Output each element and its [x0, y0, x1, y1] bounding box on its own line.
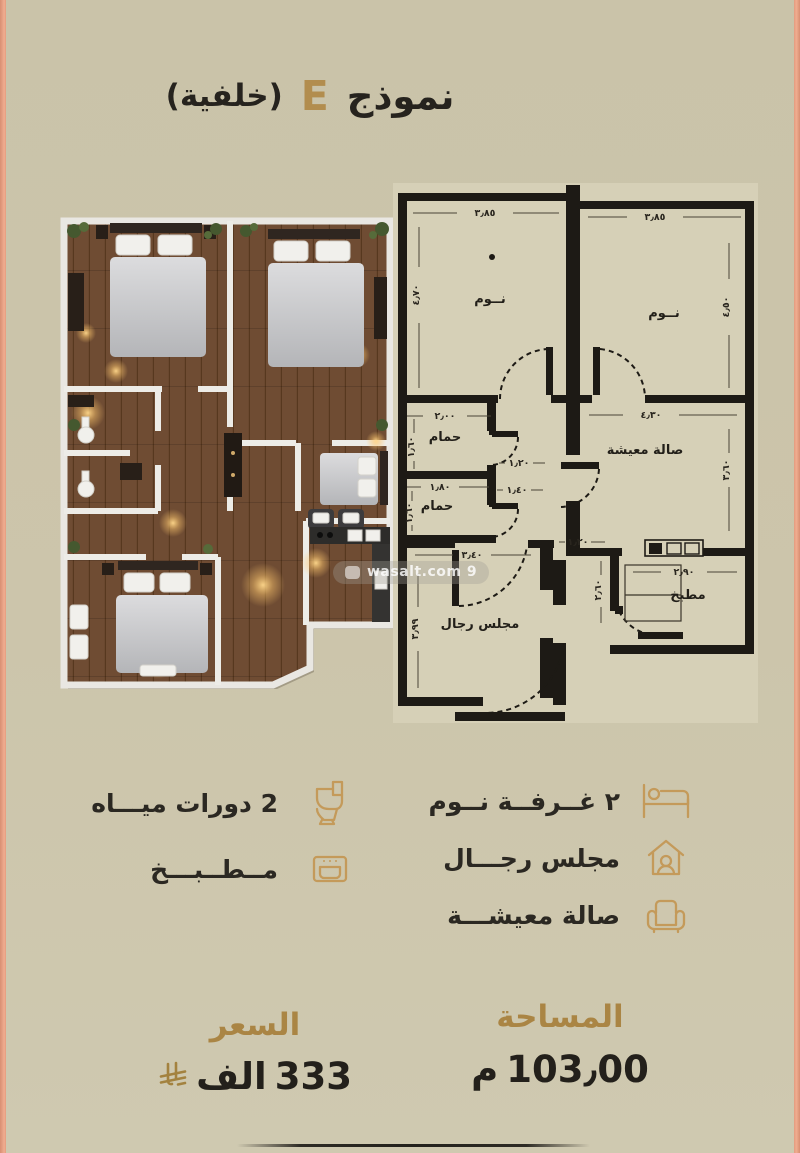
feature-majlis-label: مجلس رجـــال [443, 844, 620, 873]
price-stat: السعر 333 الف [140, 1007, 370, 1100]
watermark: wasalt.com 9 [333, 561, 489, 584]
dim-bath1-h: ١٫٦٠ [406, 437, 417, 458]
stove-icon [302, 853, 358, 885]
label-majlis: مجلس رجال [441, 617, 520, 632]
area-label: المساحة [440, 999, 680, 1035]
dim-bath1-w: ٢٫٠٠ [435, 411, 456, 422]
sofa-icon [638, 895, 694, 935]
label-bedroom1: نــوم [474, 292, 505, 307]
feature-kitchen-label: مــطــبـــخ [150, 855, 278, 884]
right-border [794, 0, 800, 1153]
dim-bedroom2-w: ٣٫٨٥ [645, 212, 666, 223]
watermark-text: wasalt.com 9 [367, 564, 477, 580]
flyer-page: نموذج E (خلفية) [0, 0, 800, 1153]
bottom-divider-line [237, 1144, 590, 1147]
feature-bedrooms-label: ٢ غــرفــة نــوم [429, 787, 621, 816]
dim-bedroom1-w: ٣٫٨٥ [475, 208, 496, 219]
page-title: نموذج E (خلفية) [100, 72, 520, 120]
area-value-row: 103٫00 م [440, 1048, 680, 1091]
feature-majlis: مجلس رجـــال [446, 838, 694, 878]
label-bath2: حمام [421, 499, 454, 514]
price-label: السعر [140, 1007, 370, 1043]
watermark-logo-icon [345, 566, 360, 579]
dim-hall-w3: ١٫٢٠ [568, 537, 589, 548]
left-border [0, 0, 6, 1153]
area-value: 103٫00 [506, 1048, 649, 1091]
label-bedroom2: نــوم [648, 306, 679, 321]
label-living: صالة معيشة [607, 443, 684, 458]
toilet-icon [302, 779, 358, 827]
majlis-house-icon [638, 838, 694, 878]
dim-living-h: ٣٫٦٠ [721, 460, 732, 481]
price-unit: الف [196, 1055, 267, 1098]
feature-living-label: صالة معيشـــة [447, 901, 620, 930]
hall-sideboard [224, 433, 242, 497]
dim-majlis-h: ٣٫٩٩ [410, 618, 421, 639]
dim-kitchen-h: ٢٫٦٠ [593, 580, 604, 601]
feature-bathrooms-label: 2 دورات ميـــاه [91, 789, 278, 818]
area-unit: م [471, 1048, 498, 1091]
feature-bedrooms: ٢ غــرفــة نــوم [446, 781, 694, 821]
saudi-riyal-icon [158, 1057, 188, 1100]
price-value-row: 333 الف [140, 1053, 370, 1100]
dim-bath2-h: ١٫٦٠ [404, 503, 415, 524]
dim-bath2-w: ١٫٨٠ [430, 482, 451, 493]
dim-majlis-w: ٣٫٤٠ [462, 550, 483, 561]
price-value: 333 [275, 1055, 352, 1098]
title-model-letter: E [299, 72, 331, 120]
dim-living-w: ٤٫٣٠ [641, 410, 662, 421]
title-suffix: (خلفية) [166, 78, 283, 114]
features-left-column: 2 دورات ميـــاه مــطــبـــخ [58, 779, 358, 885]
dim-hall-w2: ١٫٤٠ [507, 485, 528, 496]
title-model-word: نموذج [347, 75, 455, 118]
label-kitchen: مطبخ [670, 588, 705, 603]
feature-bathrooms: 2 دورات ميـــاه [58, 779, 358, 827]
area-stat: المساحة 103٫00 م [440, 999, 680, 1091]
dim-kitchen-w: ٢٫٩٠ [674, 567, 695, 578]
dim-bedroom2-h: ٤٫٥٠ [721, 297, 732, 318]
feature-living: صالة معيشـــة [446, 895, 694, 935]
label-bath1: حمام [429, 430, 462, 445]
dim-hall-w1: ١٫٢٠ [509, 458, 530, 469]
feature-kitchen: مــطــبـــخ [58, 853, 358, 885]
bed-icon [638, 781, 694, 821]
floor-plan-3d [58, 213, 395, 715]
floor-plan-2d: نــوم نــوم حمام حمام صالة معيشة مجلس رج… [393, 183, 758, 723]
dim-bedroom1-h: ٤٫٧٠ [411, 285, 422, 306]
features-right-column: ٢ غــرفــة نــوم مجلس رجـــال [446, 781, 694, 935]
